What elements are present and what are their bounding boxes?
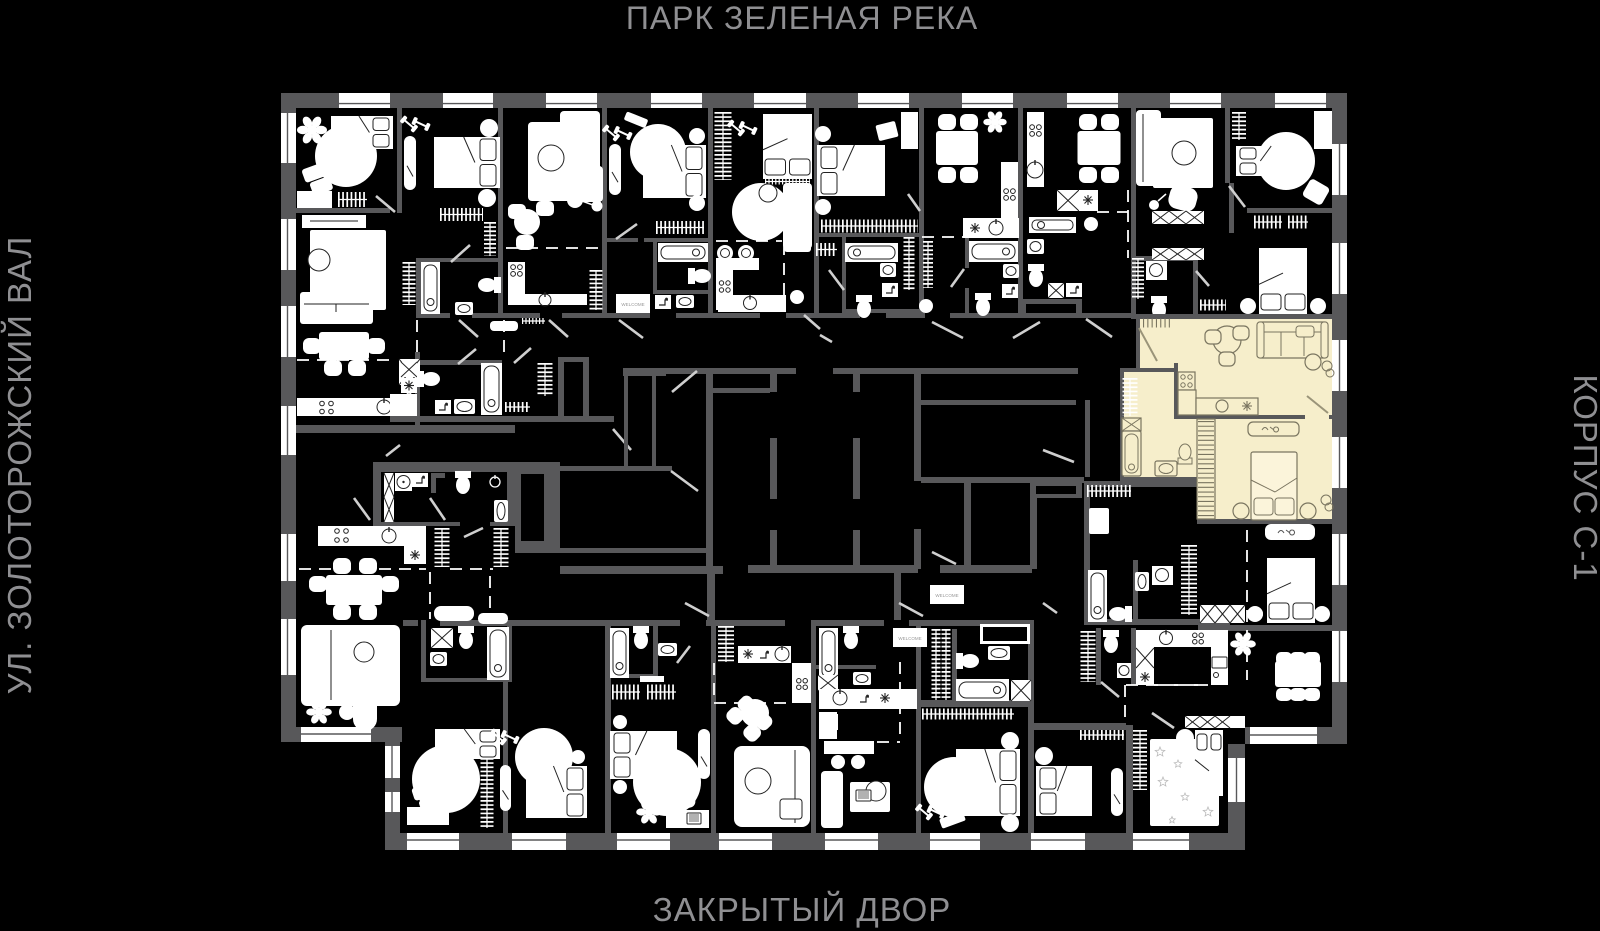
svg-text:ЗАКРЫТЫЙ ДВОР: ЗАКРЫТЫЙ ДВОР (653, 891, 952, 928)
svg-text:WELCOME: WELCOME (621, 302, 644, 307)
svg-text:ПАРК ЗЕЛЕНАЯ РЕКА: ПАРК ЗЕЛЕНАЯ РЕКА (626, 0, 978, 36)
svg-text:WELCOME: WELCOME (898, 636, 921, 641)
svg-text:WELCOME: WELCOME (935, 593, 958, 598)
svg-text:УЛ. ЗОЛОТОРОЖСКИЙ ВАЛ: УЛ. ЗОЛОТОРОЖСКИЙ ВАЛ (1, 236, 38, 695)
svg-text:КОРПУС С-1: КОРПУС С-1 (1567, 374, 1600, 581)
